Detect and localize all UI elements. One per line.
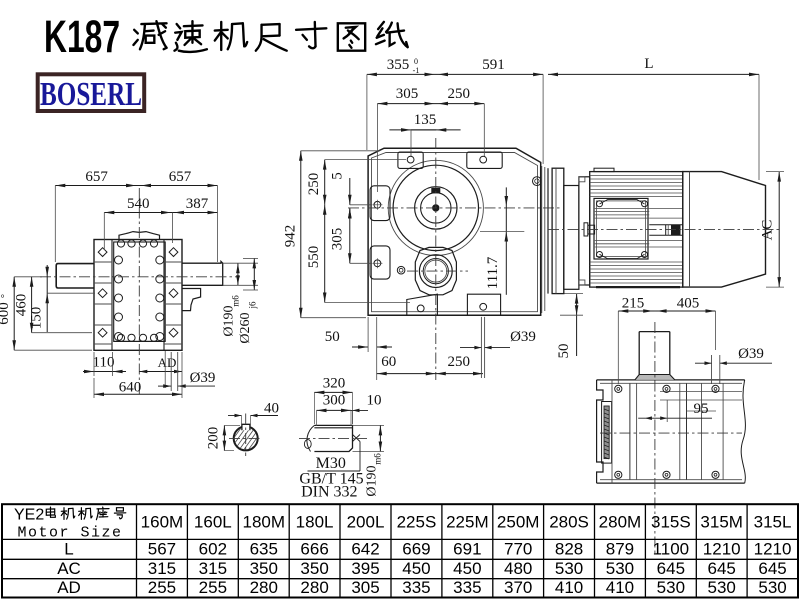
svg-text:645: 645: [708, 559, 736, 578]
svg-text:m6: m6: [373, 453, 383, 465]
svg-text:j6: j6: [248, 301, 258, 310]
svg-text:450: 450: [453, 559, 481, 578]
svg-text:315: 315: [148, 559, 176, 578]
svg-text:180M: 180M: [242, 513, 285, 532]
svg-text:200L: 200L: [347, 513, 385, 532]
svg-text:250M: 250M: [497, 513, 540, 532]
svg-text:315S: 315S: [651, 513, 691, 532]
svg-text:Ø190: Ø190: [222, 305, 237, 336]
svg-text:591: 591: [482, 57, 505, 73]
svg-text:250: 250: [447, 354, 470, 370]
svg-text:1210: 1210: [703, 540, 741, 559]
svg-text:642: 642: [351, 540, 379, 559]
svg-text:Ø190: Ø190: [365, 465, 380, 496]
svg-text:215: 215: [622, 296, 645, 312]
svg-text:M30: M30: [316, 455, 346, 472]
svg-text:530: 530: [708, 578, 736, 597]
svg-text:635: 635: [250, 540, 278, 559]
svg-text:AD: AD: [57, 578, 81, 597]
svg-text:879: 879: [606, 540, 634, 559]
svg-text:942: 942: [283, 225, 299, 248]
svg-text:450: 450: [402, 559, 430, 578]
svg-text:95: 95: [694, 401, 709, 417]
svg-text:300: 300: [323, 393, 346, 409]
svg-text:0: 0: [414, 57, 418, 66]
svg-text:691: 691: [453, 540, 481, 559]
svg-text:567: 567: [148, 540, 176, 559]
svg-text:335: 335: [453, 578, 481, 597]
svg-text:335: 335: [402, 578, 430, 597]
svg-text:255: 255: [148, 578, 176, 597]
svg-text:669: 669: [402, 540, 430, 559]
svg-text:370: 370: [504, 578, 532, 597]
svg-text:305: 305: [396, 86, 419, 102]
svg-text:110: 110: [93, 355, 115, 371]
svg-text:280S: 280S: [549, 513, 589, 532]
svg-text:305: 305: [330, 228, 346, 251]
svg-text:°: °: [0, 294, 11, 298]
svg-text:AC: AC: [57, 559, 81, 578]
svg-text:111.7: 111.7: [485, 256, 501, 289]
svg-text:60: 60: [381, 354, 396, 370]
svg-text:645: 645: [758, 559, 786, 578]
svg-text:5: 5: [330, 172, 346, 180]
svg-text:410: 410: [555, 578, 583, 597]
svg-text:AD: AD: [158, 355, 177, 370]
svg-text:160M: 160M: [141, 513, 184, 532]
svg-text:1210: 1210: [754, 540, 792, 559]
svg-text:K187: K187: [44, 11, 120, 62]
svg-text:1100: 1100: [653, 540, 690, 559]
svg-text:640: 640: [119, 380, 142, 396]
svg-text:395: 395: [351, 559, 379, 578]
svg-text:200: 200: [206, 427, 222, 450]
svg-text:657: 657: [85, 169, 108, 185]
svg-text:-1: -1: [413, 66, 420, 75]
svg-text:AC: AC: [760, 220, 776, 241]
svg-text:160L: 160L: [194, 513, 232, 532]
svg-text:150: 150: [29, 307, 45, 330]
svg-text:600: 600: [0, 302, 12, 325]
svg-text:530: 530: [606, 559, 634, 578]
svg-text:BOSERL: BOSERL: [40, 76, 142, 113]
svg-text:460: 460: [14, 294, 30, 317]
svg-text:DIN 332: DIN 332: [301, 484, 357, 501]
svg-text:666: 666: [300, 540, 328, 559]
svg-text:405: 405: [677, 296, 700, 312]
svg-text:10: 10: [367, 393, 382, 409]
svg-text:50: 50: [556, 344, 572, 359]
svg-text:645: 645: [657, 559, 685, 578]
svg-text:250: 250: [306, 173, 322, 196]
svg-text:350: 350: [250, 559, 278, 578]
svg-text:280M: 280M: [599, 513, 642, 532]
svg-text:530: 530: [657, 578, 685, 597]
svg-text:828: 828: [555, 540, 583, 559]
svg-text:250: 250: [447, 86, 470, 102]
svg-text:YE2: YE2: [14, 507, 44, 524]
svg-text:355: 355: [387, 57, 410, 73]
svg-text:Ø39: Ø39: [510, 329, 536, 345]
svg-text:280: 280: [300, 578, 328, 597]
svg-text:540: 540: [127, 196, 150, 212]
svg-text:Ø260: Ø260: [238, 312, 253, 343]
svg-text:40: 40: [264, 401, 279, 417]
svg-text:770: 770: [504, 540, 532, 559]
svg-text:135: 135: [414, 112, 437, 128]
svg-text:180L: 180L: [296, 513, 334, 532]
svg-text:L: L: [644, 56, 653, 72]
svg-text:L: L: [64, 540, 73, 559]
svg-text:530: 530: [758, 578, 786, 597]
svg-text:602: 602: [199, 540, 227, 559]
svg-text:315M: 315M: [700, 513, 743, 532]
svg-text:350: 350: [300, 559, 328, 578]
svg-text:225S: 225S: [397, 513, 437, 532]
svg-text:Ø39: Ø39: [190, 370, 216, 386]
svg-text:387: 387: [186, 196, 209, 212]
svg-text:m6: m6: [231, 295, 241, 307]
svg-text:320: 320: [323, 376, 346, 392]
svg-text:410: 410: [606, 578, 634, 597]
svg-text:315L: 315L: [754, 513, 792, 532]
svg-text:530: 530: [555, 559, 583, 578]
svg-text:305: 305: [351, 578, 379, 597]
svg-text:50: 50: [325, 329, 340, 345]
svg-text:Ø39: Ø39: [738, 346, 764, 362]
svg-text:480: 480: [504, 559, 532, 578]
svg-text:550: 550: [306, 246, 322, 269]
svg-text:255: 255: [199, 578, 227, 597]
svg-text:657: 657: [169, 169, 192, 185]
svg-text:315: 315: [199, 559, 227, 578]
svg-text:280: 280: [250, 578, 278, 597]
svg-text:225M: 225M: [446, 513, 489, 532]
